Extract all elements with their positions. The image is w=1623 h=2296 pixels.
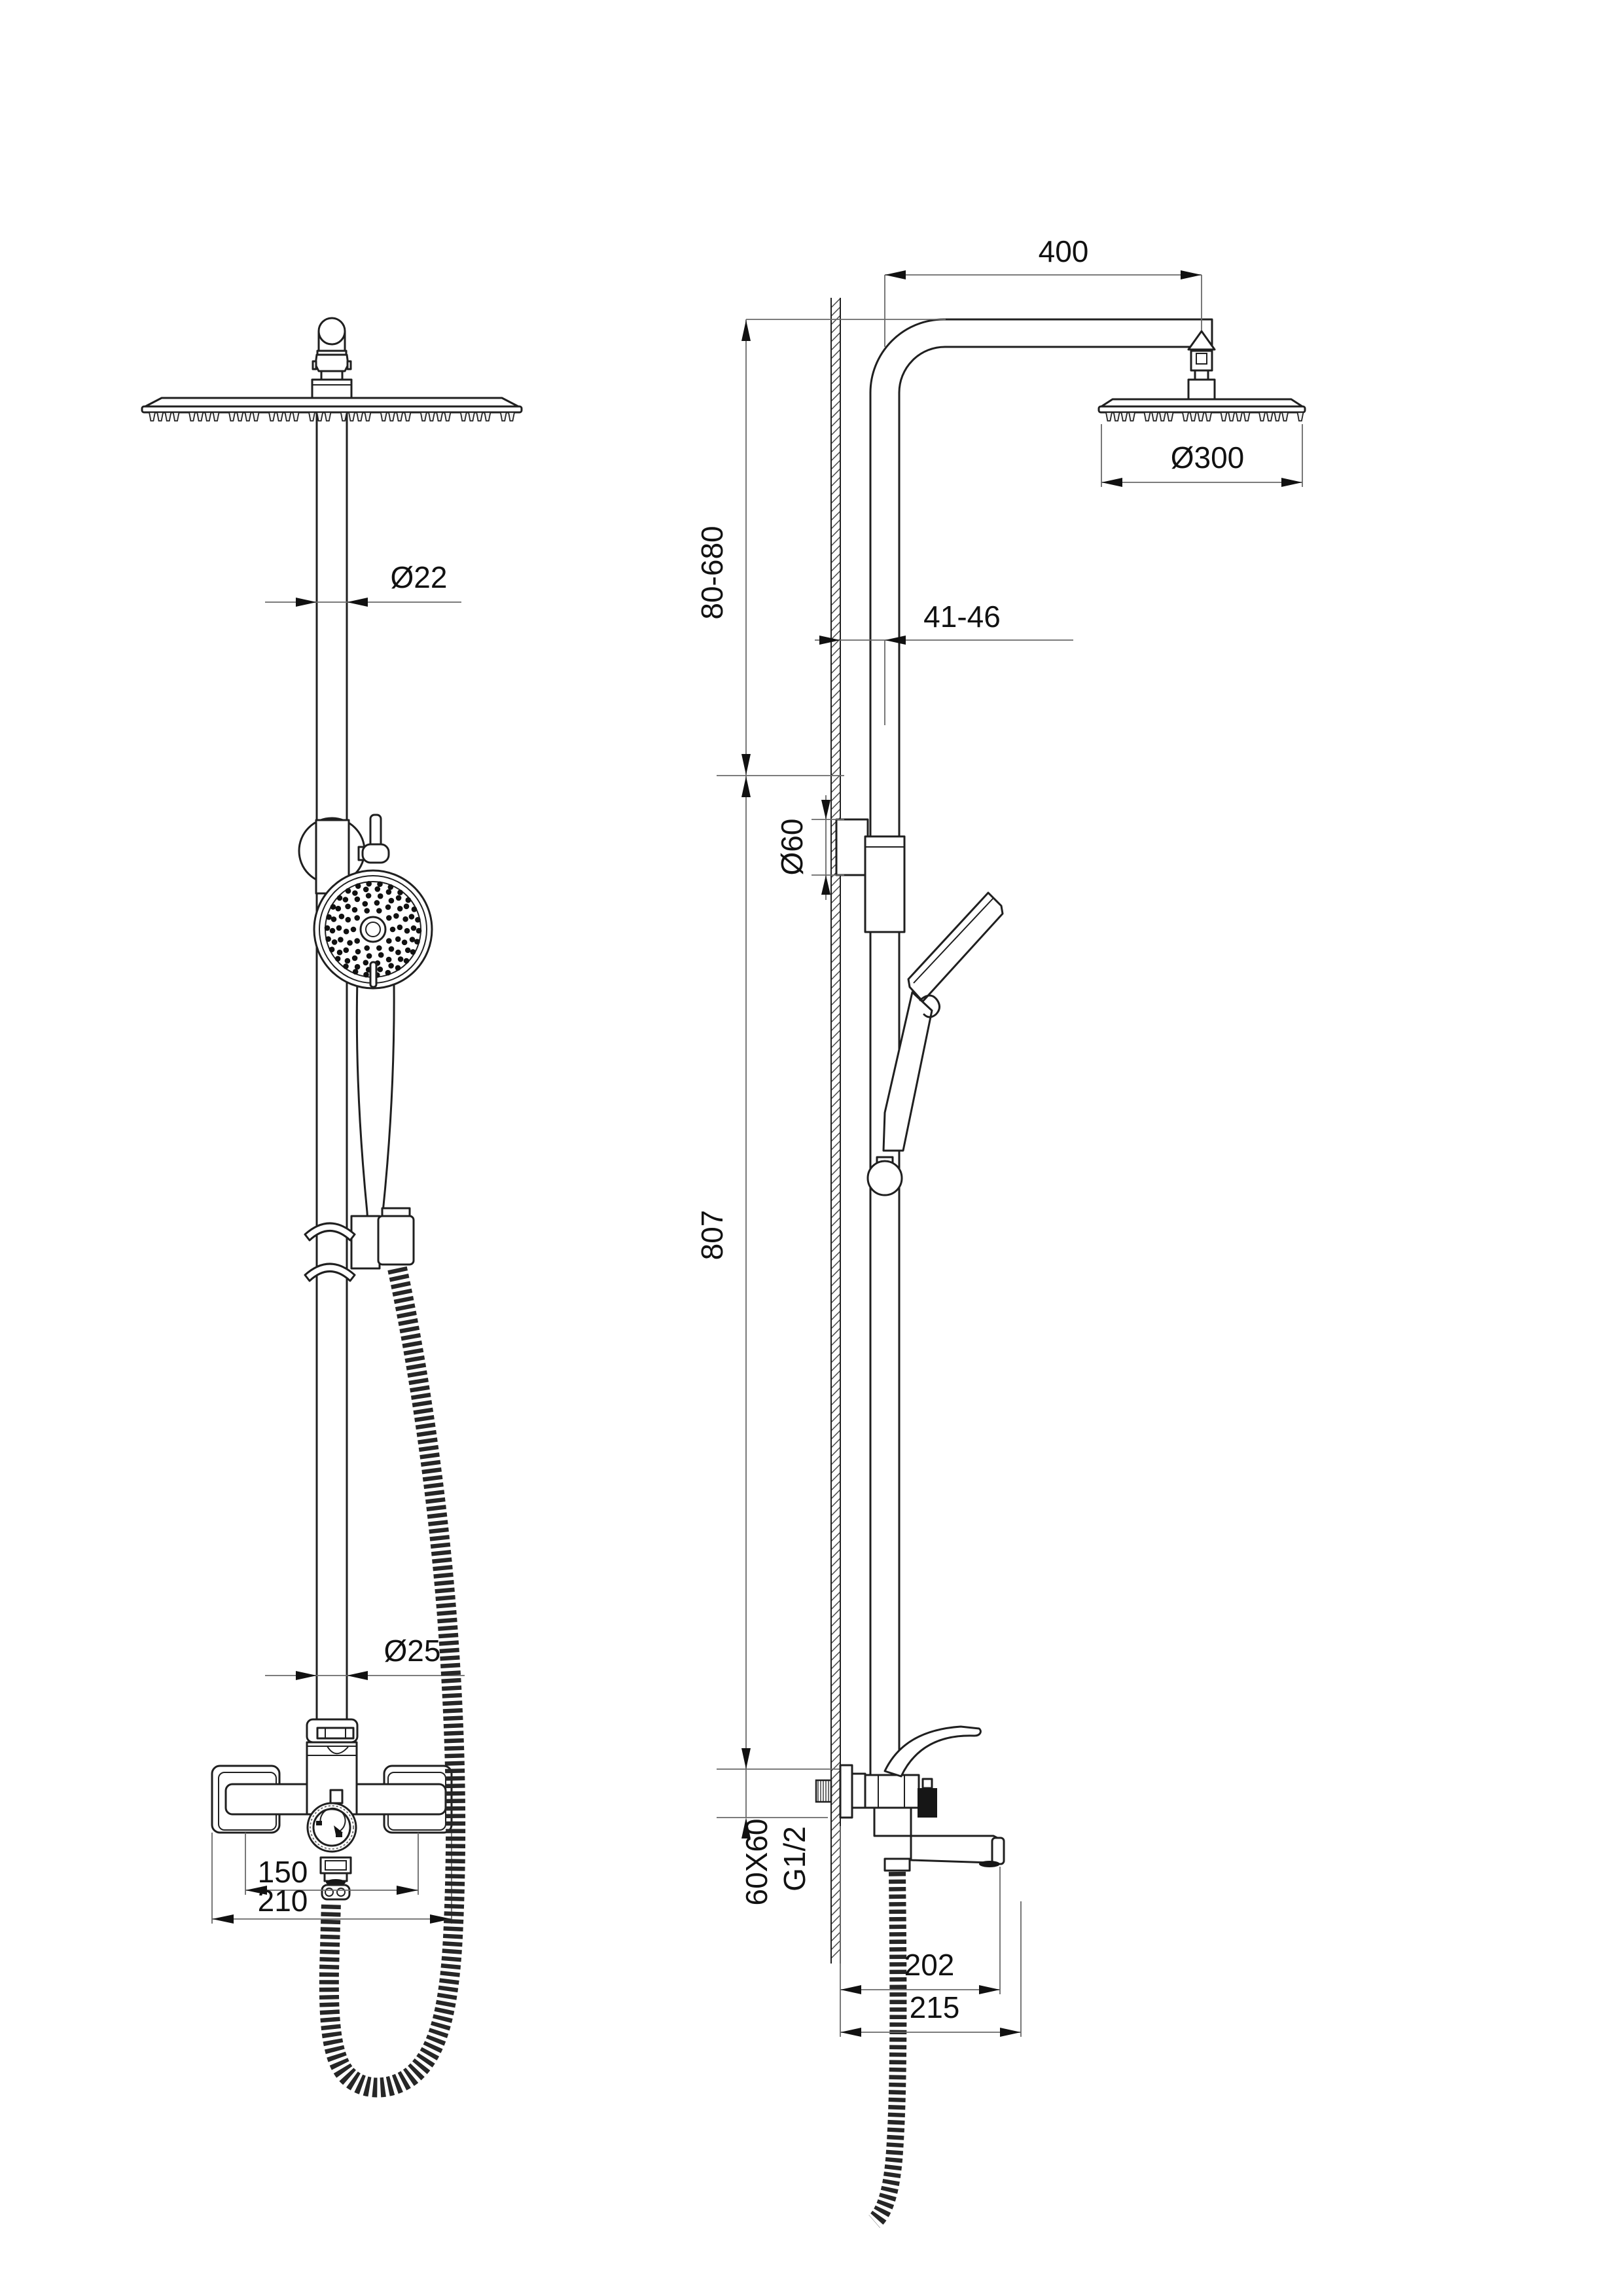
spray-dot bbox=[402, 940, 408, 946]
nozzle bbox=[229, 412, 235, 421]
spray-dot bbox=[386, 915, 392, 921]
hatch-line bbox=[831, 1319, 840, 1329]
head-face-line bbox=[914, 898, 993, 983]
hatch-line bbox=[831, 1200, 840, 1210]
dim-o22-label: Ø22 bbox=[391, 560, 448, 594]
nozzle bbox=[508, 412, 514, 421]
nozzle bbox=[1236, 412, 1242, 421]
nozzle bbox=[157, 412, 163, 421]
hatch-line bbox=[831, 656, 840, 665]
hatch-line bbox=[831, 418, 840, 427]
nozzle bbox=[381, 412, 387, 421]
hatch-line bbox=[831, 937, 840, 946]
dimension-pipe-diameter: Ø22 bbox=[265, 560, 461, 607]
spray-dot bbox=[352, 890, 358, 896]
body-lower-side bbox=[874, 1808, 911, 1836]
dim-g12-label: G1/2 bbox=[777, 1826, 811, 1892]
spray-dot bbox=[326, 914, 332, 920]
spray-dot bbox=[404, 904, 410, 910]
spray-dot bbox=[386, 957, 392, 963]
spray-dot bbox=[343, 963, 349, 969]
spray-dot bbox=[364, 908, 370, 914]
hatch-line bbox=[831, 928, 840, 937]
nozzle bbox=[269, 412, 275, 421]
nozzle bbox=[317, 412, 323, 421]
nozzle bbox=[1129, 412, 1135, 421]
hatch-line bbox=[831, 1243, 840, 1252]
dimension-bracket-diameter: Ø60 bbox=[775, 795, 844, 900]
hatch-line bbox=[831, 596, 840, 605]
hose-nut bbox=[378, 1216, 414, 1265]
hatch-line bbox=[831, 1192, 840, 1201]
nozzle bbox=[389, 412, 395, 421]
shower-system-technical-drawing: Ø22 bbox=[0, 0, 1623, 2296]
hand-shower-front bbox=[314, 870, 432, 988]
spray-dot bbox=[395, 965, 401, 971]
hatch-line bbox=[831, 1583, 840, 1592]
drawing-sheet: Ø22 bbox=[0, 0, 1623, 2296]
hatch-line bbox=[831, 1064, 840, 1073]
dim-400-label: 400 bbox=[1039, 234, 1089, 268]
hatch-line bbox=[831, 545, 840, 554]
hatch-line bbox=[831, 528, 840, 537]
nozzle bbox=[1298, 412, 1304, 421]
spray-dot bbox=[406, 897, 412, 903]
hatch-line bbox=[831, 1362, 840, 1371]
spray-dot bbox=[374, 900, 380, 906]
hatch-line bbox=[831, 1839, 840, 1848]
arrowhead bbox=[741, 776, 751, 797]
hatch-line bbox=[831, 877, 840, 886]
arrowhead bbox=[840, 2028, 861, 2037]
spray-dot bbox=[388, 963, 394, 969]
hatch-line bbox=[831, 1175, 840, 1184]
hatch-line bbox=[831, 681, 840, 691]
spray-dot bbox=[325, 925, 330, 931]
arrowhead bbox=[296, 598, 317, 607]
rain-shower-head-side bbox=[1099, 399, 1305, 421]
hatch-line bbox=[831, 732, 840, 742]
spray-dot bbox=[364, 945, 370, 951]
hatch-line bbox=[831, 1464, 840, 1473]
hatch-line bbox=[831, 367, 840, 376]
hatch-line bbox=[831, 792, 840, 801]
spray-dot bbox=[346, 888, 351, 894]
spray-dot bbox=[404, 928, 410, 934]
hatch-line bbox=[831, 1770, 840, 1780]
shower-hose-side bbox=[874, 1872, 898, 2221]
spray-dot bbox=[415, 917, 421, 923]
hatch-line bbox=[831, 554, 840, 563]
nozzle bbox=[1106, 412, 1112, 421]
joint-tab-left bbox=[313, 361, 316, 369]
spray-dot bbox=[336, 925, 342, 931]
hatch-line bbox=[831, 1515, 840, 1524]
hatch-line bbox=[831, 1541, 840, 1550]
hatch-line bbox=[831, 1915, 840, 1924]
hatch-line bbox=[831, 988, 840, 997]
arm-ball-joint-front bbox=[312, 318, 351, 403]
spray-dot bbox=[385, 905, 391, 910]
spray-dot bbox=[355, 884, 361, 889]
hatch-line bbox=[831, 537, 840, 546]
spray-dot bbox=[355, 949, 361, 955]
nozzle bbox=[1228, 412, 1234, 421]
nozzle bbox=[309, 412, 315, 421]
hatch-line bbox=[831, 358, 840, 367]
hatch-line bbox=[831, 307, 840, 316]
hatch-line bbox=[831, 1677, 840, 1686]
arrowhead bbox=[885, 270, 906, 279]
nozzle bbox=[397, 412, 402, 421]
nozzle bbox=[404, 412, 410, 421]
spray-dot bbox=[347, 940, 353, 946]
hatch-line bbox=[831, 1600, 840, 1609]
hatch-line bbox=[831, 1847, 840, 1856]
hatch-line bbox=[831, 903, 840, 912]
hatch-line bbox=[831, 426, 840, 435]
hatch-line bbox=[831, 1566, 840, 1575]
spray-dot bbox=[330, 928, 336, 934]
hatch-line bbox=[831, 1234, 840, 1244]
hatch-line bbox=[831, 1558, 840, 1567]
hose-nut-side bbox=[885, 1859, 910, 1871]
hatch-line bbox=[831, 579, 840, 588]
arrowhead bbox=[1281, 478, 1302, 487]
nozzle bbox=[245, 412, 251, 421]
hatch-line bbox=[831, 1056, 840, 1065]
spray-dot bbox=[405, 948, 411, 954]
hatch-line bbox=[831, 954, 840, 963]
hatch-line bbox=[831, 520, 840, 529]
shower-hose-front bbox=[329, 1268, 455, 2088]
cone-joint bbox=[1188, 331, 1215, 350]
hatch-line bbox=[831, 945, 840, 954]
nozzle bbox=[437, 412, 442, 421]
arrowhead bbox=[1181, 270, 1202, 279]
arm-connector-side bbox=[1188, 331, 1215, 401]
arrowhead bbox=[347, 1671, 368, 1680]
dim-60x60-label: 60X60 bbox=[740, 1818, 774, 1905]
temp-dial-inner bbox=[313, 1809, 350, 1846]
hatch-line bbox=[831, 1285, 840, 1295]
hatch-line bbox=[831, 571, 840, 580]
spray-dot bbox=[402, 916, 408, 922]
hatch-line bbox=[831, 324, 840, 333]
spray-dot bbox=[354, 915, 360, 921]
spray-dot bbox=[397, 925, 403, 931]
nozzle bbox=[349, 412, 355, 421]
hatch-line bbox=[831, 613, 840, 622]
spray-dot bbox=[355, 897, 361, 903]
rain-shower-head-front bbox=[142, 398, 522, 421]
dim-80-680-label: 80-680 bbox=[695, 526, 729, 619]
hatch-line bbox=[831, 503, 840, 512]
hatch-line bbox=[831, 298, 840, 308]
spray-dot bbox=[337, 950, 343, 956]
nozzle bbox=[325, 412, 330, 421]
nozzle bbox=[476, 412, 482, 421]
dim-210-label: 210 bbox=[258, 1884, 308, 1918]
hatch-line bbox=[831, 1294, 840, 1303]
hatch-line bbox=[831, 749, 840, 759]
arrowhead bbox=[819, 636, 840, 645]
dimension-wall-clearance: 41-46 bbox=[815, 600, 1073, 725]
spray-dot bbox=[354, 938, 360, 944]
hatch-line bbox=[831, 1524, 840, 1533]
hatch-line bbox=[831, 460, 840, 469]
dimension-lower-pipe-diameter: Ø25 bbox=[265, 1634, 465, 1680]
joint-neck-side bbox=[1195, 370, 1208, 380]
hatch-line bbox=[831, 1949, 840, 1958]
hatch-line bbox=[831, 1268, 840, 1278]
dimension-head-diameter: Ø300 bbox=[1101, 424, 1302, 487]
hatch-line bbox=[831, 443, 840, 452]
hatch-line bbox=[831, 1396, 840, 1405]
hatch-line bbox=[831, 452, 840, 461]
hatch-line bbox=[831, 1481, 840, 1490]
mixer-front bbox=[212, 1719, 452, 1899]
hatch-line bbox=[831, 809, 840, 818]
dimension-arm-reach: 400 bbox=[885, 234, 1202, 347]
hatch-line bbox=[831, 894, 840, 903]
spout-side bbox=[911, 1836, 1003, 1863]
arrowhead bbox=[741, 320, 751, 341]
spray-dot bbox=[376, 908, 382, 914]
nozzle bbox=[149, 412, 155, 421]
hatch-line bbox=[831, 1115, 840, 1124]
arrowhead bbox=[296, 1671, 317, 1680]
spray-dot bbox=[378, 967, 383, 973]
spray-dot bbox=[339, 914, 345, 920]
spray-dot bbox=[344, 947, 349, 953]
hatch-line bbox=[831, 486, 840, 495]
spray-dot bbox=[389, 898, 395, 904]
hatch-line bbox=[831, 562, 840, 571]
spray-dot bbox=[352, 907, 358, 913]
hatch-line bbox=[831, 1132, 840, 1141]
hatch-line bbox=[831, 1873, 840, 1882]
hatch-line bbox=[831, 1422, 840, 1431]
dim-202-label: 202 bbox=[904, 1948, 955, 1982]
spray-dot bbox=[332, 939, 338, 945]
hatch-line bbox=[831, 1030, 840, 1039]
face-center-cap bbox=[361, 917, 385, 942]
joint-neck bbox=[321, 371, 342, 380]
nozzle bbox=[1190, 412, 1196, 421]
hatch-line bbox=[831, 435, 840, 444]
hand-shower-head-side bbox=[908, 893, 1003, 1001]
spray-dot bbox=[376, 945, 382, 951]
wall-section bbox=[831, 298, 840, 1964]
hatch-line bbox=[831, 1098, 840, 1107]
hatch-line bbox=[831, 1405, 840, 1414]
hatch-line bbox=[831, 1354, 840, 1363]
hatch-line bbox=[831, 1388, 840, 1397]
hatch-line bbox=[831, 647, 840, 656]
hatch-line bbox=[831, 1796, 840, 1805]
dim-807-label: 807 bbox=[695, 1210, 729, 1261]
spray-dot bbox=[389, 946, 395, 952]
hatch-line bbox=[831, 1217, 840, 1227]
spray-dot bbox=[335, 956, 341, 962]
hatch-line bbox=[831, 766, 840, 776]
hatch-line bbox=[831, 1447, 840, 1456]
hatch-line bbox=[831, 1881, 840, 1890]
spray-dot bbox=[337, 895, 343, 901]
diverter-pin bbox=[370, 815, 381, 848]
hatch-line bbox=[831, 1328, 840, 1337]
spray-dot bbox=[397, 889, 403, 895]
nozzle bbox=[189, 412, 195, 421]
spray-dot bbox=[414, 939, 420, 945]
nozzle bbox=[1114, 412, 1120, 421]
hatch-line bbox=[831, 1728, 840, 1737]
arrowhead bbox=[821, 800, 830, 819]
spray-dot bbox=[325, 936, 331, 942]
spray-dot bbox=[345, 958, 351, 964]
dim-o300-label: Ø300 bbox=[1171, 440, 1245, 475]
hatch-line bbox=[831, 971, 840, 980]
spray-dot bbox=[363, 887, 369, 893]
diverter-knob bbox=[363, 844, 389, 863]
nozzle bbox=[165, 412, 171, 421]
hatch-line bbox=[831, 1890, 840, 1899]
hatch-line bbox=[831, 886, 840, 895]
dim-41-46-label: 41-46 bbox=[923, 600, 1001, 634]
spray-dot bbox=[395, 937, 401, 942]
hatch-line bbox=[831, 630, 840, 639]
body-tab bbox=[330, 1790, 342, 1803]
hatch-line bbox=[831, 384, 840, 393]
side-view: 400 Ø300 80-680 807 bbox=[695, 234, 1305, 2221]
spray-dot bbox=[416, 928, 422, 934]
hatch-line bbox=[831, 1864, 840, 1873]
spray-dot bbox=[338, 937, 344, 942]
hatch-line bbox=[831, 1932, 840, 1941]
spray-dot bbox=[355, 964, 361, 970]
hatch-line bbox=[831, 783, 840, 793]
head-nozzles-side bbox=[1106, 412, 1304, 421]
spray-dot bbox=[366, 893, 372, 899]
hatch-line bbox=[831, 1941, 840, 1950]
arrowhead bbox=[885, 636, 906, 645]
spray-dot bbox=[412, 906, 418, 912]
mode-pin bbox=[370, 962, 376, 987]
nozzle bbox=[253, 412, 259, 421]
arrowhead bbox=[397, 1886, 418, 1895]
spray-dot bbox=[378, 952, 384, 958]
hatch-line bbox=[831, 1413, 840, 1422]
spray-dot bbox=[366, 881, 372, 887]
spray-dot bbox=[363, 960, 369, 966]
hatch-line bbox=[831, 1532, 840, 1541]
nozzle bbox=[1221, 412, 1227, 421]
hatch-line bbox=[831, 690, 840, 699]
nozzle bbox=[1152, 412, 1158, 421]
head-plate-side bbox=[1099, 406, 1305, 412]
spray-dot bbox=[396, 895, 402, 901]
union-hex bbox=[852, 1774, 865, 1808]
nozzle bbox=[1168, 412, 1173, 421]
ball-joint bbox=[319, 318, 345, 344]
spray-dot bbox=[363, 901, 368, 907]
nozzle bbox=[197, 412, 203, 421]
hatch-line bbox=[831, 1711, 840, 1720]
hatch-line bbox=[831, 1345, 840, 1354]
hatch-line bbox=[831, 664, 840, 673]
nozzle bbox=[285, 412, 291, 421]
nozzle bbox=[484, 412, 490, 421]
arrowhead bbox=[741, 754, 751, 775]
tap-glyph-right bbox=[336, 1833, 342, 1837]
diverter-knob-side bbox=[918, 1788, 937, 1818]
spray-dot bbox=[344, 929, 349, 935]
nozzle bbox=[1244, 412, 1250, 421]
hatch-line bbox=[831, 1311, 840, 1320]
hatch-line bbox=[831, 1166, 840, 1175]
riser-pipe-front bbox=[317, 412, 347, 1719]
hatch-line bbox=[831, 1473, 840, 1482]
nozzle bbox=[421, 412, 427, 421]
joint-tab-right bbox=[348, 361, 351, 369]
hatch-line bbox=[831, 1804, 840, 1814]
hatch-line bbox=[831, 775, 840, 784]
spray-dot bbox=[366, 953, 372, 959]
diverter-stem-side bbox=[923, 1779, 932, 1788]
spray-dot bbox=[386, 938, 392, 944]
spray-dot bbox=[330, 904, 336, 910]
nozzle bbox=[1274, 412, 1280, 421]
hatch-line bbox=[831, 1073, 840, 1082]
hatch-line bbox=[831, 1277, 840, 1286]
arrowhead bbox=[1000, 2028, 1021, 2037]
head-plate bbox=[142, 406, 522, 412]
hatch-line bbox=[831, 477, 840, 486]
hatch-line bbox=[831, 800, 840, 810]
hatch-line bbox=[831, 1719, 840, 1729]
dim-o60-label: Ø60 bbox=[775, 819, 809, 876]
hatch-line bbox=[831, 1575, 840, 1584]
hatch-line bbox=[831, 1226, 840, 1235]
hatch-line bbox=[831, 1439, 840, 1448]
mixer-body-side bbox=[865, 1775, 919, 1808]
hatch-line bbox=[831, 1158, 840, 1167]
hatch-line bbox=[831, 715, 840, 725]
nozzle bbox=[1205, 412, 1211, 421]
nozzle bbox=[1259, 412, 1265, 421]
nozzle bbox=[357, 412, 363, 421]
arrowhead bbox=[979, 1985, 1000, 1994]
nozzle bbox=[341, 412, 347, 421]
nozzle bbox=[1183, 412, 1188, 421]
head-bevel-side bbox=[1101, 399, 1302, 406]
arrowhead bbox=[212, 1914, 234, 1924]
nozzle bbox=[501, 412, 507, 421]
hatch-line bbox=[831, 1490, 840, 1499]
hatch-line bbox=[831, 1651, 840, 1660]
hatch-line bbox=[831, 1779, 840, 1788]
hatch-line bbox=[831, 1124, 840, 1133]
arrowhead bbox=[1101, 478, 1122, 487]
spray-dot bbox=[331, 916, 337, 922]
nozzle bbox=[1198, 412, 1204, 421]
bracket-flange bbox=[836, 819, 868, 875]
arrowhead bbox=[347, 598, 368, 607]
head-bevel bbox=[145, 398, 518, 406]
head-nozzles bbox=[149, 412, 514, 421]
spray-dot bbox=[410, 937, 416, 942]
